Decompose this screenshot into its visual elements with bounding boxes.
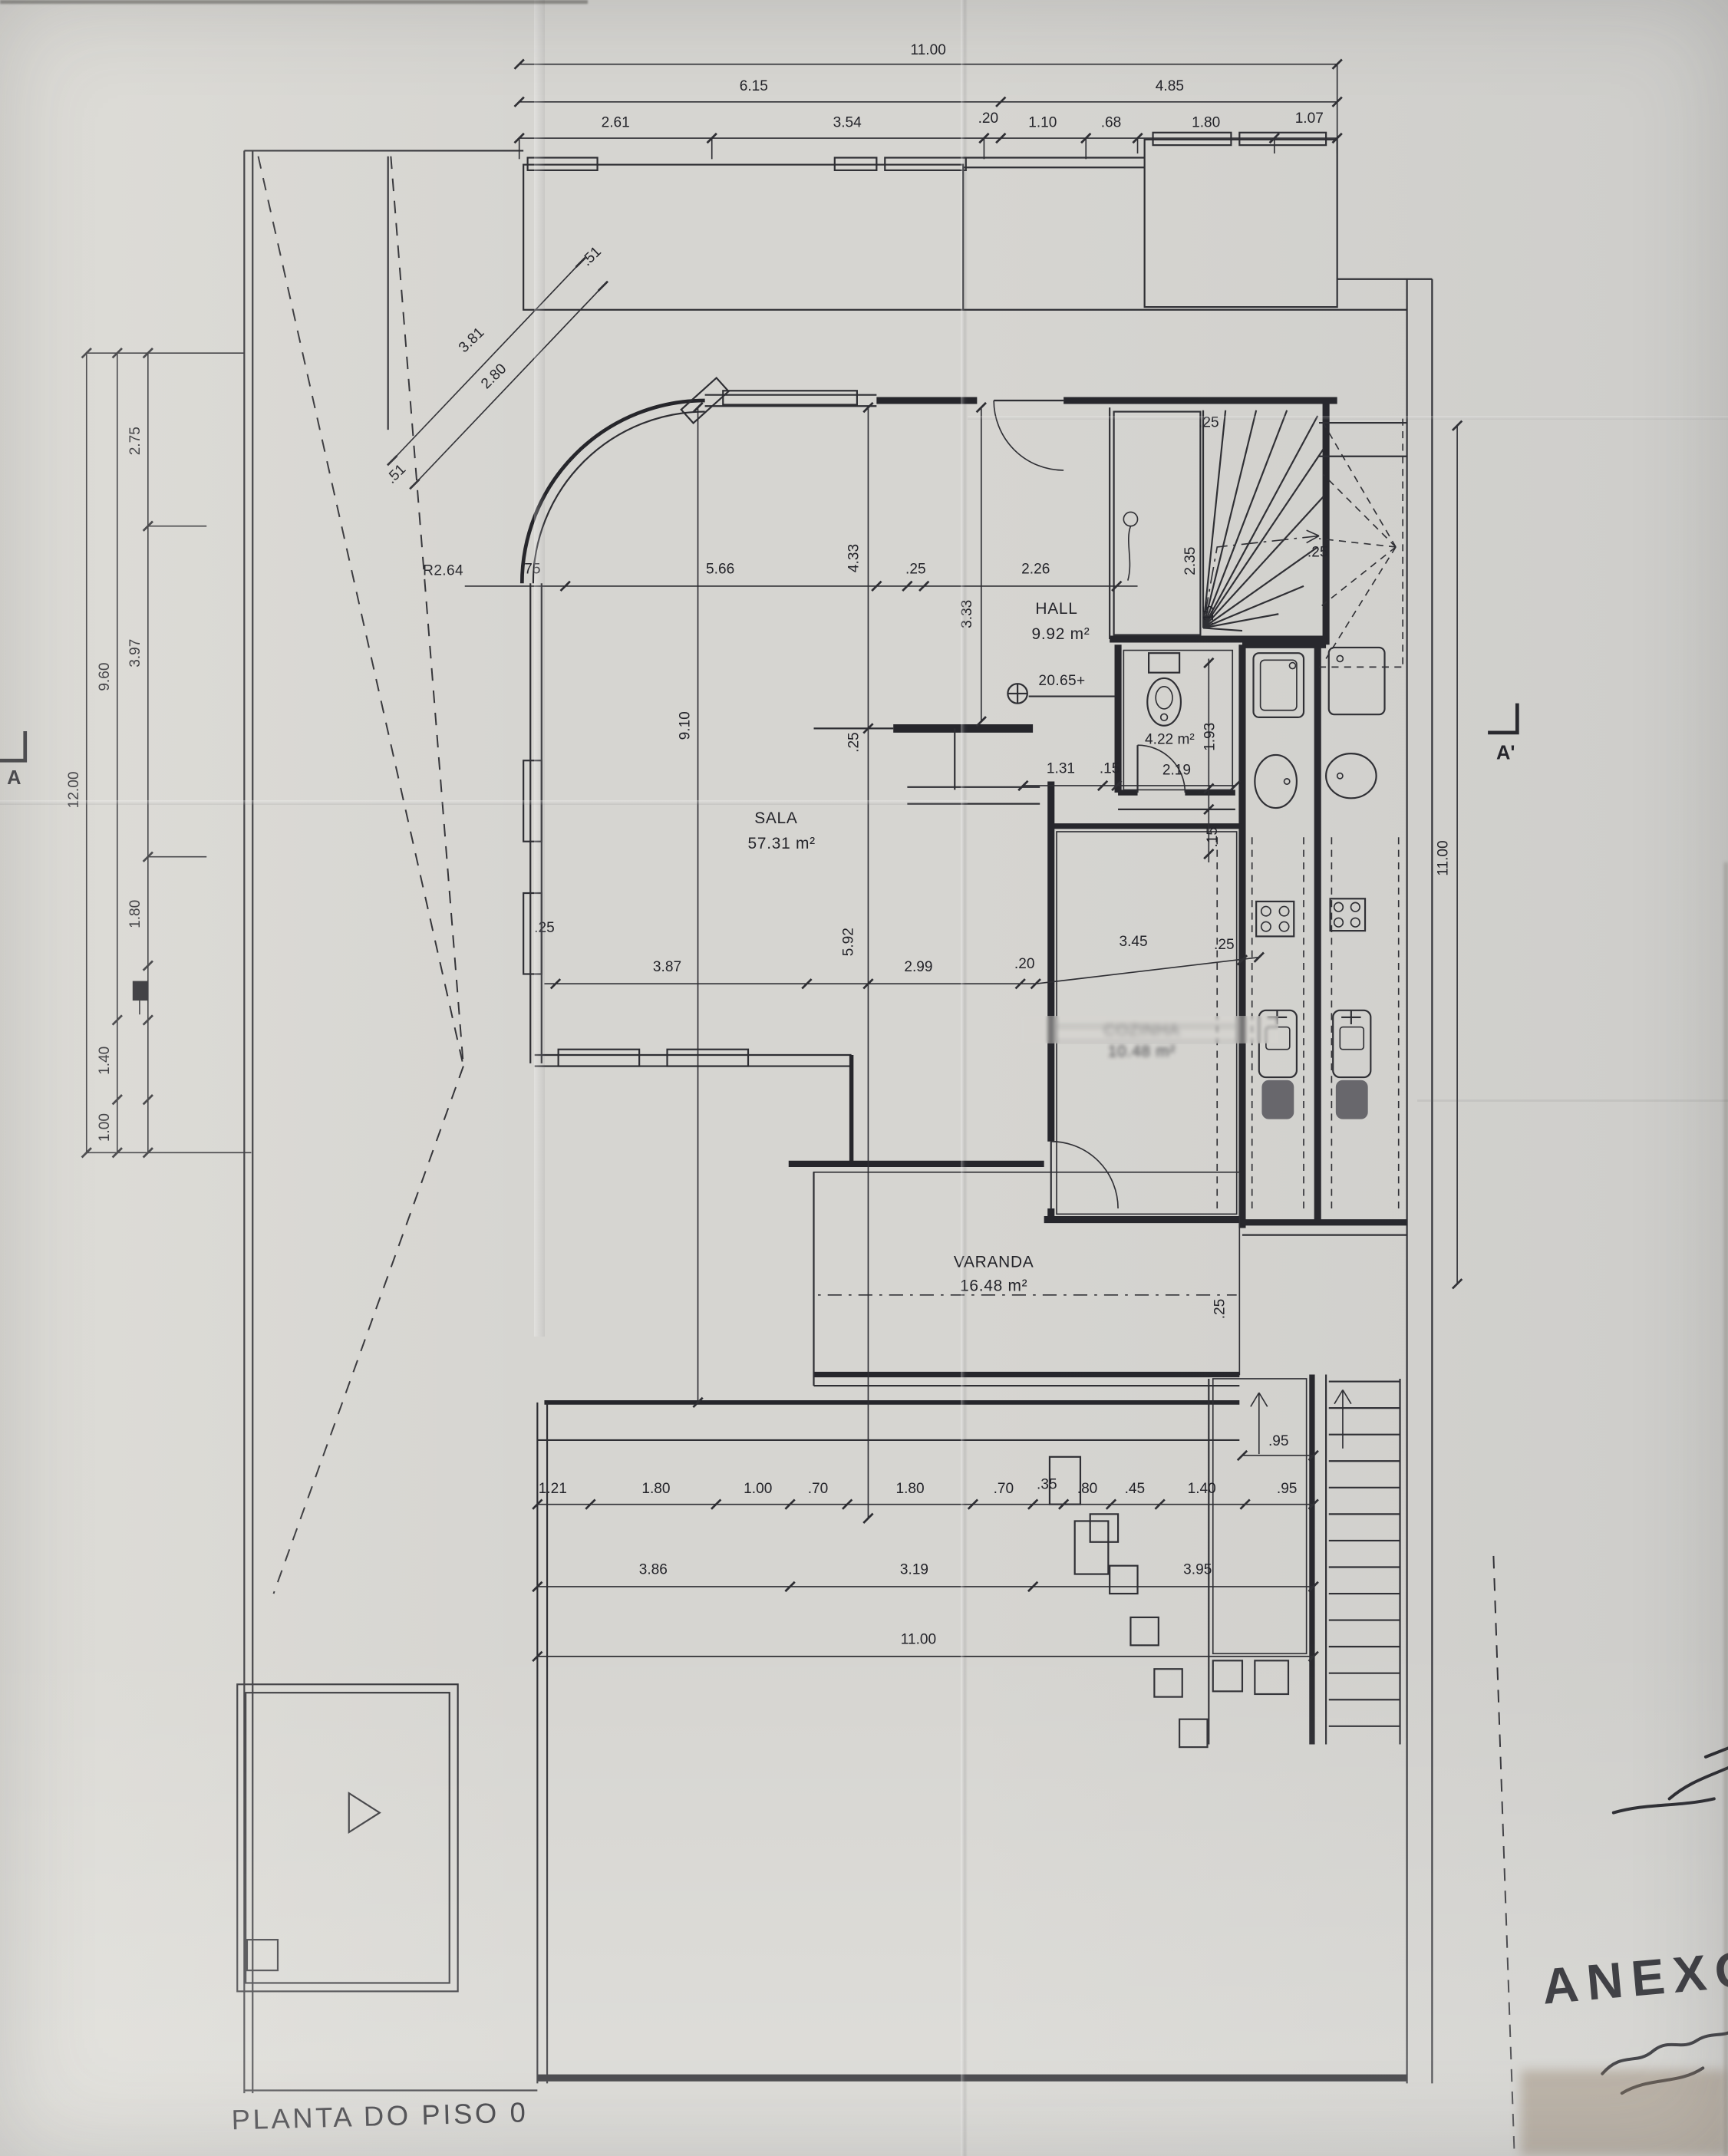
interior-stairs bbox=[1110, 407, 1323, 639]
dim-label: 2.75 bbox=[127, 427, 143, 455]
sink-unit-icon-2 bbox=[1333, 1010, 1370, 1119]
dim-label: 1.80 bbox=[641, 1481, 670, 1497]
room-label-hall: HALL bbox=[1035, 600, 1077, 618]
dim-label: 2.61 bbox=[602, 115, 630, 131]
dim-label: 3.86 bbox=[639, 1562, 668, 1578]
pool-direction-triangle bbox=[349, 1793, 380, 1832]
dim-label: .25 bbox=[905, 562, 926, 578]
dim-label: .80 bbox=[1077, 1481, 1098, 1497]
stair-figure bbox=[1123, 512, 1137, 580]
dim-label: .25 bbox=[1199, 415, 1219, 431]
left-chain-symbol bbox=[133, 981, 148, 1001]
floor-plan-drawing: 11.00 6.15 4.85 2.61 3.54 .20 1.10 .68 1… bbox=[0, 0, 1728, 2156]
dim-label: .25 bbox=[846, 732, 862, 753]
stair-up-arrow-2 bbox=[1334, 1390, 1351, 1448]
dim-label: .35 bbox=[1037, 1477, 1057, 1493]
handwritten-scribbles bbox=[1602, 1747, 1728, 2093]
dim-label: .70 bbox=[808, 1481, 829, 1497]
dim-label: .51 bbox=[579, 244, 605, 270]
dim-label: 1.07 bbox=[1295, 110, 1324, 127]
dim-label: 2.99 bbox=[904, 959, 932, 975]
dim-label: 1.00 bbox=[97, 1113, 113, 1142]
dim-label: .15 bbox=[1201, 605, 1217, 626]
dim-label: 5.92 bbox=[840, 928, 856, 956]
room-label-cozinha: COZINHA bbox=[1103, 1022, 1179, 1040]
garden-stairs bbox=[1209, 1374, 1406, 1744]
dim-label: 3.45 bbox=[1120, 934, 1148, 950]
dim-label: 6.15 bbox=[740, 78, 768, 94]
dim-label: 3.95 bbox=[1183, 1562, 1212, 1578]
basin-icon-2 bbox=[1326, 753, 1376, 798]
shower-tray-icon-2 bbox=[1329, 648, 1385, 714]
dim-label: .25 bbox=[1212, 1299, 1228, 1320]
dimension-interior bbox=[465, 403, 1264, 1523]
dim-label: 1.93 bbox=[1202, 723, 1219, 751]
section-label-a: A bbox=[7, 767, 21, 789]
radius-label: R2.64 bbox=[423, 562, 463, 579]
room-area-hall: 9.92 m² bbox=[1032, 625, 1090, 643]
dim-label: .20 bbox=[978, 110, 999, 127]
room-area-wc: 4.22 m² bbox=[1145, 731, 1195, 747]
dim-label: .95 bbox=[1268, 1433, 1289, 1449]
lower-terrace bbox=[537, 1403, 1514, 2156]
level-value: 20.65+ bbox=[1038, 673, 1085, 689]
room-area-varanda: 16.48 m² bbox=[960, 1277, 1027, 1294]
stair-up-arrow bbox=[1251, 1393, 1268, 1454]
dim-label: 4.85 bbox=[1156, 78, 1184, 94]
sink-unit-icon bbox=[1259, 1010, 1297, 1119]
section-label-a-prime: A' bbox=[1496, 742, 1515, 763]
drawing-title: PLANTA DO PISO 0 bbox=[231, 2096, 529, 2135]
dim-label: 1.31 bbox=[1047, 761, 1075, 777]
dimension-chain-top bbox=[515, 59, 1342, 159]
dim-label: 9.60 bbox=[97, 663, 113, 691]
dim-label: 11.00 bbox=[1435, 840, 1451, 875]
dim-label: 2.19 bbox=[1162, 762, 1191, 778]
room-area-sala: 57.31 m² bbox=[748, 835, 816, 852]
dim-label: 4.33 bbox=[846, 544, 862, 572]
dim-label: .68 bbox=[1101, 115, 1122, 131]
dim-label: 3.81 bbox=[456, 325, 487, 356]
dim-label: 3.19 bbox=[900, 1562, 928, 1578]
annex-handwritten-label: ANEXO bbox=[1540, 1940, 1728, 2015]
dim-label: .15 bbox=[1205, 827, 1221, 848]
dim-label: 5.66 bbox=[706, 562, 734, 578]
dim-label: 12.00 bbox=[66, 772, 82, 809]
hob-icon bbox=[1256, 902, 1294, 936]
dim-label: .51 bbox=[384, 461, 410, 487]
exterior-stair-dashed bbox=[1319, 419, 1407, 668]
shower-tray-icon bbox=[1254, 653, 1304, 717]
hob-icon-2 bbox=[1331, 898, 1365, 931]
dim-label: 2.35 bbox=[1182, 547, 1199, 575]
dim-label: 1.10 bbox=[1028, 115, 1057, 131]
roof-overhang-dashed-lines bbox=[259, 157, 463, 1594]
dim-label: .95 bbox=[1277, 1481, 1298, 1497]
pool bbox=[237, 1684, 457, 1991]
dim-label: .25 bbox=[1214, 937, 1235, 953]
dim-label: 1.21 bbox=[539, 1481, 567, 1497]
dim-label: 3.33 bbox=[959, 600, 975, 628]
dim-label: .45 bbox=[1125, 1481, 1146, 1497]
interior-walls bbox=[814, 639, 1327, 1222]
dim-label: 1.80 bbox=[895, 1481, 924, 1497]
dimension-chain-left bbox=[82, 348, 252, 1158]
room-area-cozinha: 10.48 m² bbox=[1108, 1043, 1176, 1060]
dim-label: 1.80 bbox=[127, 900, 143, 928]
plot-boundary bbox=[244, 150, 1432, 2093]
dim-label: 11.00 bbox=[901, 1632, 936, 1648]
basin-icon bbox=[1255, 755, 1297, 808]
dim-label: 11.00 bbox=[911, 42, 946, 58]
section-markers bbox=[0, 704, 1517, 761]
dimension-right bbox=[1453, 421, 1462, 1289]
toilet-icon bbox=[1147, 653, 1181, 726]
dim-label: 1.00 bbox=[744, 1481, 772, 1497]
room-label-varanda: VARANDA bbox=[954, 1253, 1034, 1271]
room-label-sala: SALA bbox=[754, 809, 797, 827]
upper-terrace-blocks bbox=[523, 133, 1337, 310]
dim-label: .25 bbox=[1308, 545, 1328, 561]
labels: 11.00 6.15 4.85 2.61 3.54 .20 1.10 .68 1… bbox=[7, 42, 1728, 2136]
dim-label: .75 bbox=[520, 562, 541, 578]
dim-label: 1.40 bbox=[1188, 1481, 1216, 1497]
dim-label: 9.10 bbox=[678, 711, 694, 740]
dim-label: 1.40 bbox=[97, 1047, 113, 1075]
dim-label: .20 bbox=[1014, 956, 1035, 972]
dim-label: .70 bbox=[994, 1481, 1014, 1497]
dim-label: .15 bbox=[1100, 761, 1120, 777]
dim-label: 2.26 bbox=[1021, 562, 1050, 578]
dim-label: 3.54 bbox=[833, 115, 862, 131]
dim-label: .25 bbox=[534, 920, 555, 936]
floor-plan-sheet: 11.00 6.15 4.85 2.61 3.54 .20 1.10 .68 1… bbox=[0, 0, 1728, 2156]
service-strips bbox=[1252, 648, 1399, 1212]
dim-label: 3.97 bbox=[127, 639, 143, 668]
dim-label: 1.80 bbox=[1192, 115, 1220, 131]
dim-label: 3.87 bbox=[653, 959, 681, 975]
